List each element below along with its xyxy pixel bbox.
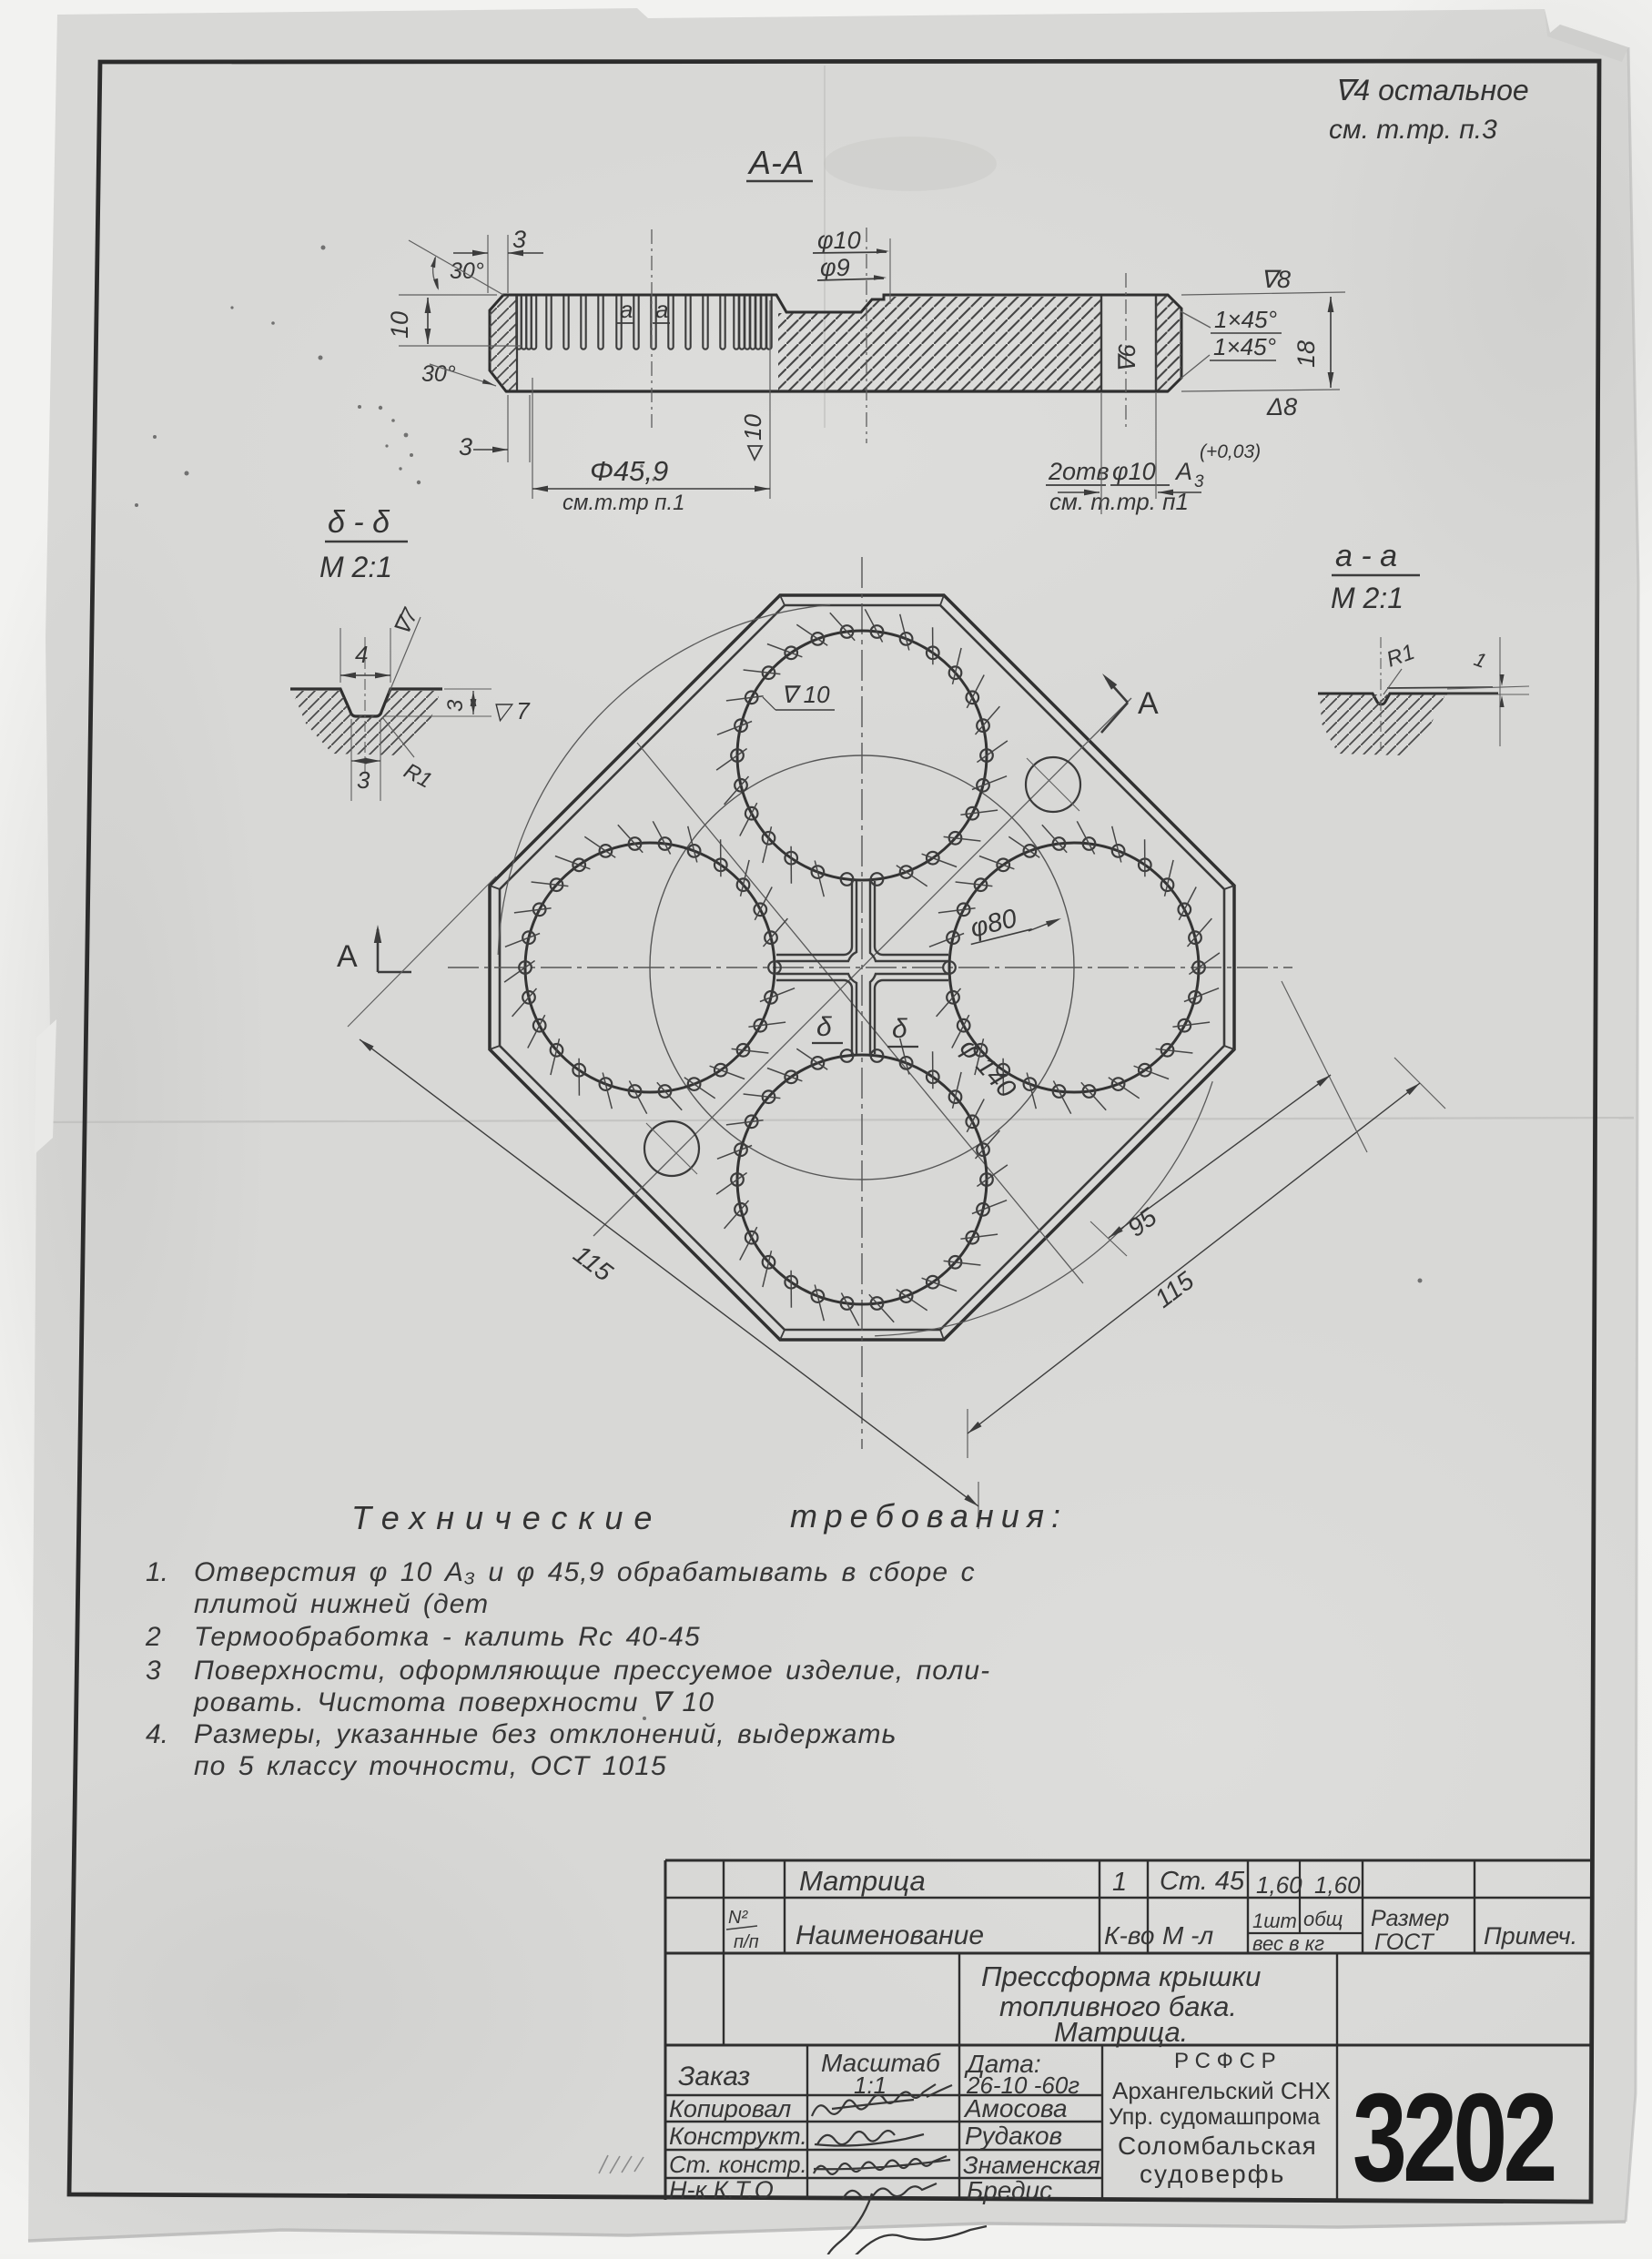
svg-text:18: 18 xyxy=(1292,340,1320,368)
svg-text:плитой нижней (дет: плитой нижней (дет xyxy=(194,1589,489,1619)
svg-text:ровать. Чистота поверхности: ровать. Чистота поверхности ∇ 10 xyxy=(193,1687,715,1717)
svg-text:3202: 3202 xyxy=(1353,2068,1554,2208)
svg-text:▽ 7: ▽ 7 xyxy=(492,697,531,724)
svg-text:Φ45,9: Φ45,9 xyxy=(590,455,668,487)
svg-text:Ст. констр.: Ст. констр. xyxy=(669,2151,807,2178)
svg-text:Конструкт.: Конструкт. xyxy=(669,2122,807,2150)
svg-text:1:1: 1:1 xyxy=(854,2072,887,2099)
svg-text:а: а xyxy=(655,296,668,323)
svg-text:1,60: 1,60 xyxy=(1314,1871,1361,1899)
svg-text:Знаменская: Знаменская xyxy=(963,2152,1100,2179)
svg-text:Размер: Размер xyxy=(1371,1906,1449,1931)
svg-text:1×45°: 1×45° xyxy=(1214,306,1277,333)
svg-text:Н-к К.Т.О: Н-к К.Т.О xyxy=(669,2176,774,2203)
svg-text:Бредис: Бредис xyxy=(967,2176,1052,2204)
svg-text:Поверхности, оформляющие пре: Поверхности, оформляющие прессуемое изде… xyxy=(194,1656,990,1686)
svg-text:∇6: ∇6 xyxy=(1113,344,1140,373)
svg-text:∇4 остальное: ∇4 остальное xyxy=(1334,74,1529,106)
svg-text:ГОСТ: ГОСТ xyxy=(1374,1930,1434,1955)
svg-text:∇ 10: ∇ 10 xyxy=(781,681,830,708)
svg-text:общ: общ xyxy=(1303,1908,1343,1930)
svg-text:10: 10 xyxy=(739,414,766,441)
svg-text:1: 1 xyxy=(1112,1868,1127,1897)
svg-text:А: А xyxy=(337,939,358,974)
svg-text:а: а xyxy=(620,296,633,323)
svg-text:требования:: требования: xyxy=(790,1497,1068,1535)
svg-text:3: 3 xyxy=(1194,472,1204,491)
svg-text:Архангельский СНХ: Архангельский СНХ xyxy=(1112,2077,1331,2104)
svg-text:см. т.тр. п.3: см. т.тр. п.3 xyxy=(1329,115,1497,145)
svg-text:Размеры, указанные без отклон: Размеры, указанные без отклонений, выдер… xyxy=(194,1719,897,1749)
svg-text:Отверстия φ 10 А₃ и φ 45,9: Отверстия φ 10 А₃ и φ 45,9 обрабатывать … xyxy=(194,1557,976,1587)
svg-text:Наименование: Наименование xyxy=(796,1920,984,1950)
svg-text:1,60: 1,60 xyxy=(1256,1871,1302,1899)
svg-text:N²: N² xyxy=(728,1908,748,1928)
svg-text:1.: 1. xyxy=(146,1557,168,1587)
svg-text:(+0,03): (+0,03) xyxy=(1200,441,1261,462)
svg-text:А: А xyxy=(1174,458,1192,485)
svg-text:Δ8: Δ8 xyxy=(1266,393,1297,420)
svg-text:М 2:1: М 2:1 xyxy=(1331,582,1404,614)
svg-text:А: А xyxy=(1138,686,1159,721)
svg-text:Технические: Технические xyxy=(351,1499,663,1536)
svg-text:Копировал: Копировал xyxy=(669,2095,791,2122)
svg-text:4.: 4. xyxy=(146,1719,168,1749)
svg-text:Примеч.: Примеч. xyxy=(1484,1922,1577,1950)
svg-text:3: 3 xyxy=(459,433,472,461)
svg-text:М 2:1: М 2:1 xyxy=(319,551,392,583)
svg-text:∇8: ∇8 xyxy=(1261,266,1291,293)
svg-text:δ: δ xyxy=(892,1014,907,1044)
svg-text:φ9: φ9 xyxy=(820,254,850,281)
svg-text:Р С Ф С Р: Р С Ф С Р xyxy=(1174,2049,1276,2073)
svg-text:п/п: п/п xyxy=(734,1932,759,1952)
svg-text:δ: δ xyxy=(816,1012,832,1042)
svg-text:30°: 30° xyxy=(450,258,484,284)
svg-text:Термообработка - калить Rс: Термообработка - калить Rс 40-45 xyxy=(194,1622,701,1652)
svg-text:А-А: А-А xyxy=(747,144,804,181)
svg-text:вес в кг: вес в кг xyxy=(1252,1932,1324,1955)
svg-text:3: 3 xyxy=(443,699,468,712)
svg-text:Ст. 45: Ст. 45 xyxy=(1160,1867,1245,1896)
svg-text:Амосова: Амосова xyxy=(963,2094,1068,2122)
svg-text:30°: 30° xyxy=(421,361,456,387)
svg-text:а - а: а - а xyxy=(1335,539,1397,573)
svg-text:Матрица.: Матрица. xyxy=(1054,2016,1188,2048)
svg-text:φ10: φ10 xyxy=(817,227,861,254)
svg-text:δ - δ: δ - δ xyxy=(328,505,390,540)
svg-text:4: 4 xyxy=(355,641,368,668)
svg-text:судоверфь: судоверфь xyxy=(1140,2160,1285,2188)
svg-text:Рудаков: Рудаков xyxy=(965,2122,1062,2150)
svg-text:Матрица: Матрица xyxy=(799,1865,926,1897)
svg-text:1шт: 1шт xyxy=(1252,1910,1297,1932)
svg-text:Упр. судомашпрома: Упр. судомашпрома xyxy=(1109,2104,1320,2130)
svg-text:3: 3 xyxy=(146,1656,161,1686)
svg-text:Соломбальская: Соломбальская xyxy=(1118,2132,1317,2160)
svg-text:2отв: 2отв xyxy=(1048,458,1110,485)
svg-text:10: 10 xyxy=(386,311,413,339)
svg-text:Заказ: Заказ xyxy=(678,2061,750,2092)
svg-text:3: 3 xyxy=(512,226,526,253)
svg-text:по 5 классу точности, ОСТ 1: по 5 классу точности, ОСТ 1015 xyxy=(194,1751,667,1781)
svg-text:М -л: М -л xyxy=(1162,1921,1213,1950)
svg-text:3: 3 xyxy=(357,766,370,794)
svg-text:Прессформа крышки: Прессформа крышки xyxy=(981,1960,1261,1992)
svg-text:2: 2 xyxy=(145,1622,161,1652)
svg-text:см.т.тр п.1: см.т.тр п.1 xyxy=(562,491,684,515)
svg-text:К-во: К-во xyxy=(1104,1921,1154,1950)
svg-text:φ10: φ10 xyxy=(1112,458,1156,485)
svg-text:1×45°: 1×45° xyxy=(1213,333,1276,360)
